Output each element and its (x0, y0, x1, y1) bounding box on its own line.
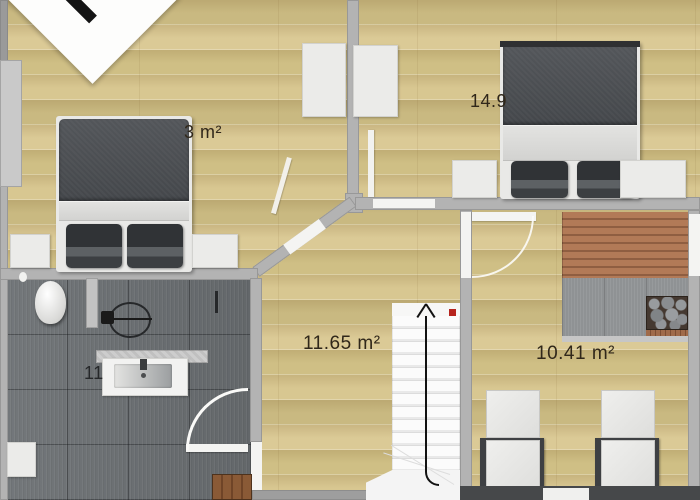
up-arrow-icon (425, 316, 427, 472)
dresser-right-bedroom (353, 45, 398, 117)
lounge-chair-1-back (486, 390, 540, 438)
sauna-bench (562, 212, 688, 278)
sauna-room-door-opening (461, 212, 471, 278)
bed-right-duvet (503, 47, 637, 125)
bed-right-pillow-1 (511, 161, 568, 198)
area-label-sauna-room: 10.41 m² (536, 343, 615, 365)
right-wall-opening (689, 214, 700, 276)
area-label-hallway: 11.65 m² (303, 333, 381, 355)
sauna-edge (562, 336, 688, 342)
bed-left-sheet-fold (59, 201, 189, 221)
nightstand-left-2 (192, 234, 238, 268)
bed-left-pillow-2 (127, 224, 183, 268)
bed-right-sheet-fold (503, 125, 637, 161)
area-label-bedroom-right: 14.9 (470, 91, 507, 112)
bed-left-duvet (59, 119, 189, 201)
bedroom-right-door-leaf (368, 130, 374, 197)
wall-bathroom-partition (86, 278, 98, 328)
side-table-tray (543, 488, 589, 500)
stairs-red-marker (449, 309, 456, 316)
area-label-bathroom: 11 (84, 363, 104, 384)
nightstand-right-1 (452, 160, 497, 198)
wall-diagonal (252, 197, 356, 277)
nightstand-left-1 (10, 234, 50, 268)
drain (141, 373, 146, 378)
bedroom-left-door-leaf (271, 157, 292, 214)
shower-head-circle (109, 302, 151, 338)
toilet (35, 281, 66, 324)
faucet (140, 359, 147, 370)
lounge-chair-1-seat (486, 440, 540, 492)
lounge-chair-2-seat (601, 440, 655, 492)
shower-glass-handle (215, 291, 218, 313)
bedroom-left-door-opening (283, 219, 326, 255)
sauna-heater-stones (646, 296, 688, 330)
shower-fixture (101, 311, 114, 324)
bedroom-right-door-opening (373, 199, 435, 208)
sauna-room-door-swing-arc (472, 216, 534, 278)
area-label-bedroom-left: 3 m² (184, 122, 222, 143)
bathroom-shelf (7, 442, 36, 477)
outer-wall-left-dark (0, 0, 8, 62)
toilet-roll-holder (19, 272, 27, 282)
wall-left-block (0, 60, 22, 187)
stairs-winder (366, 470, 460, 500)
lounge-chair-2-back (601, 390, 655, 438)
wall-bathroom-right (250, 278, 262, 442)
bed-left-pillow-1 (66, 224, 122, 268)
nightstand-right-2 (620, 160, 686, 198)
stool (212, 474, 252, 500)
floor-plan: 3 m² 14.9 11.65 m² 10.41 m² 11 (0, 0, 700, 500)
dresser-left-bedroom (302, 43, 346, 117)
